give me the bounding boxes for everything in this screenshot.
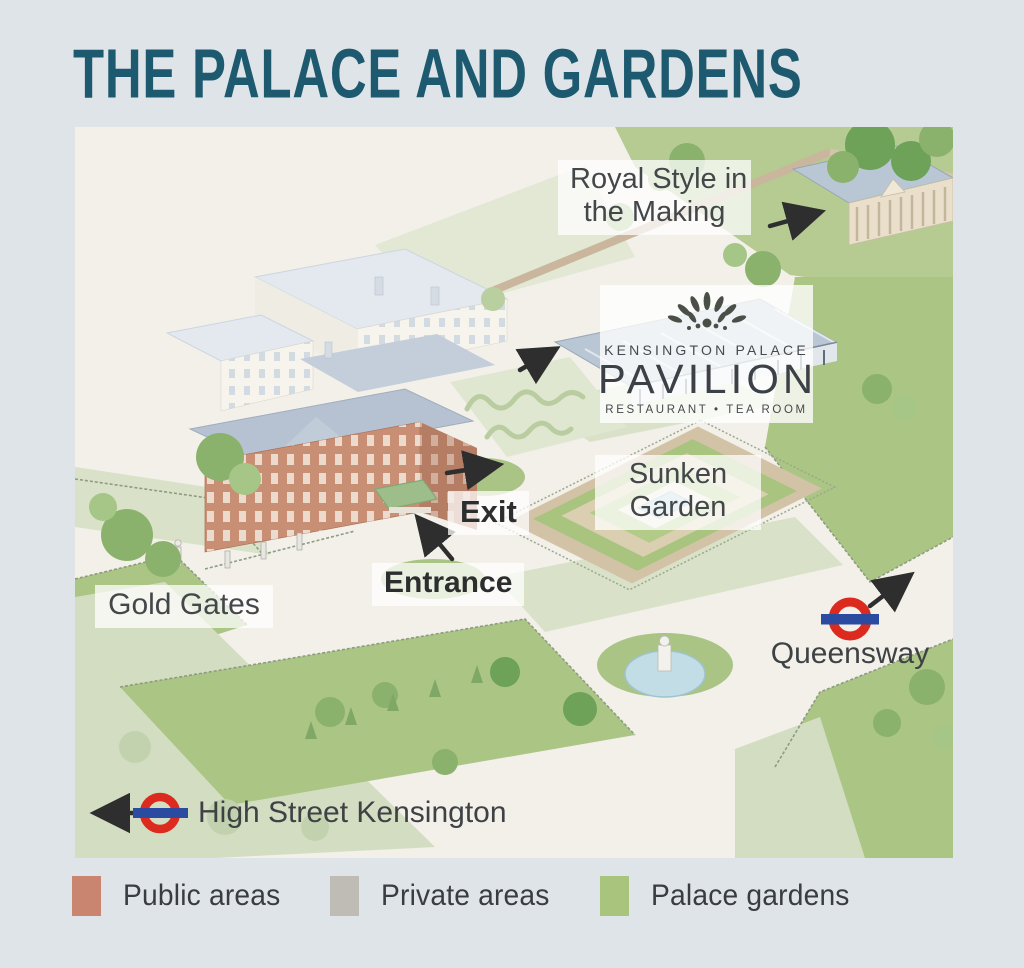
pavilion-logo: KENSINGTON PALACE PAVILION RESTAURANT • … <box>600 285 813 423</box>
high-street-kensington-station-label: High Street Kensington <box>198 796 507 830</box>
queensway-station-label: Queensway <box>771 637 929 671</box>
entrance-label: Entrance <box>372 563 524 606</box>
page: THE PALACE AND GARDENS <box>0 0 1024 968</box>
page-title: THE PALACE AND GARDENS <box>73 34 803 114</box>
palace-gardens-swatch <box>600 876 629 916</box>
palace-gardens-map: Royal Style in the Making <box>75 127 953 858</box>
exit-label: Exit <box>448 491 529 535</box>
legend-label: Palace gardens <box>651 879 850 913</box>
royal-style-label: Royal Style in the Making <box>558 160 751 235</box>
legend: Public areas Private areas Palace garden… <box>0 874 1024 924</box>
legend-label: Private areas <box>381 879 550 913</box>
legend-item-palace-gardens: Palace gardens <box>600 874 862 918</box>
pavilion-leaf-ornament-icon <box>661 289 753 335</box>
legend-item-public-areas: Public areas <box>72 874 291 918</box>
gold-gates-label: Gold Gates <box>95 585 273 628</box>
legend-label: Public areas <box>123 879 280 913</box>
legend-item-private-areas: Private areas <box>330 874 560 918</box>
sunken-garden-label: Sunken Garden <box>595 455 761 530</box>
pavilion-name-text: PAVILION <box>598 358 815 401</box>
public-areas-swatch <box>72 876 101 916</box>
pavilion-subtitle-text: RESTAURANT • TEA ROOM <box>600 404 813 416</box>
private-areas-swatch <box>330 876 359 916</box>
